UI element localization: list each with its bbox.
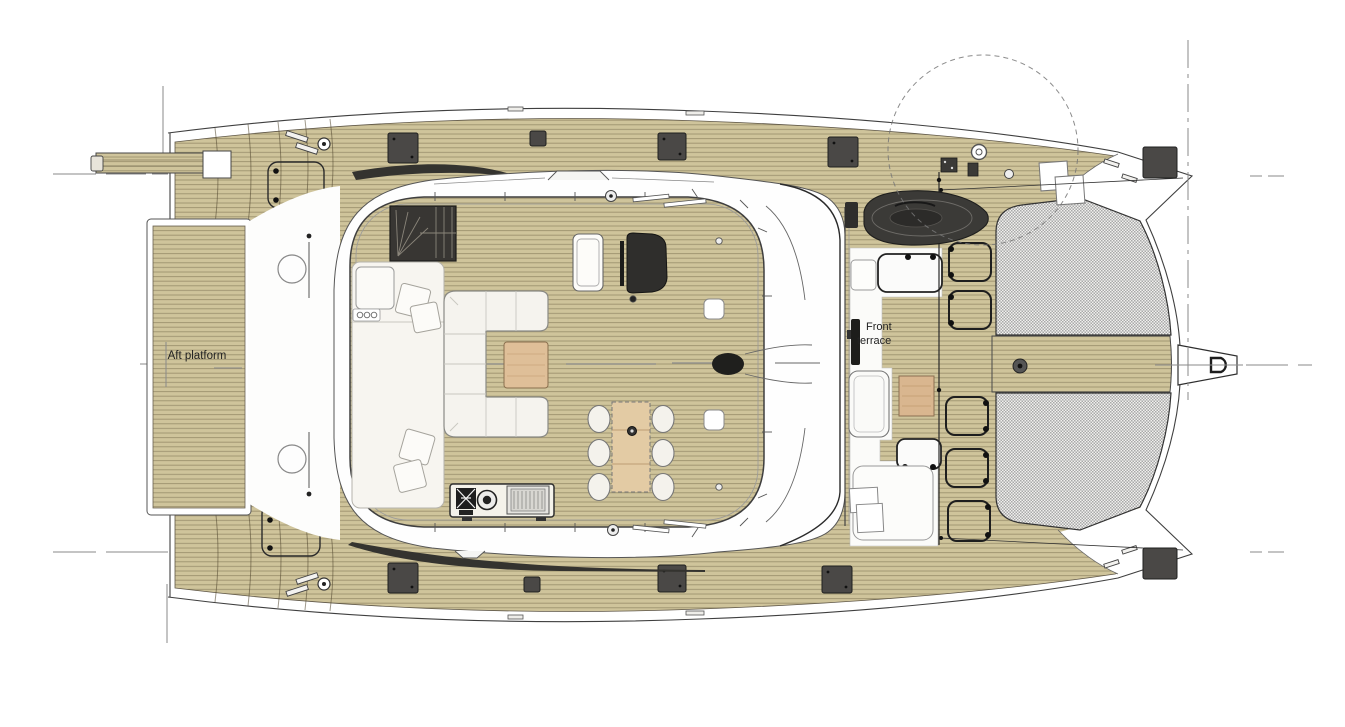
cockpit bbox=[248, 186, 340, 540]
front-terrace-label-line2: terrace bbox=[857, 335, 891, 347]
aft-platform-label: Aft platform bbox=[168, 350, 227, 362]
windlass-dot bbox=[1018, 364, 1023, 369]
deck-fitting-round bbox=[1005, 170, 1014, 179]
roof-fitting-top bbox=[716, 238, 722, 244]
galley-unit bbox=[450, 484, 554, 521]
roof-pad-top bbox=[704, 299, 724, 319]
crane-post bbox=[972, 145, 987, 160]
top-bench bbox=[573, 234, 603, 291]
cockpit-floor bbox=[248, 186, 340, 540]
galley-grill-icon bbox=[507, 486, 549, 514]
passerelle-tip bbox=[91, 156, 103, 171]
cockpit-table-port bbox=[278, 255, 306, 283]
terrace-seat-left bbox=[849, 371, 889, 437]
dining-table bbox=[612, 402, 650, 492]
deck-fitting-a bbox=[941, 158, 957, 172]
staircase bbox=[390, 206, 456, 261]
terrace-seat-small bbox=[851, 260, 876, 290]
cockpit-table-starboard bbox=[278, 445, 306, 473]
jet-ski-seat bbox=[890, 209, 942, 227]
roof-notch-top bbox=[548, 171, 609, 180]
aft-platform-teak bbox=[153, 226, 245, 508]
passerelle-base bbox=[203, 151, 231, 178]
deck-fitting-b bbox=[968, 163, 978, 176]
passerelle-plank bbox=[96, 153, 206, 173]
roof-fitting-bottom bbox=[716, 484, 722, 490]
front-terrace-label-line1: Front bbox=[866, 321, 892, 333]
helm-door-handle bbox=[712, 353, 744, 375]
deck-plan-canvas: Aft platform bbox=[0, 0, 1345, 727]
reference-marks-right bbox=[1188, 40, 1312, 552]
terrace-door-latch bbox=[847, 330, 851, 339]
helm-rail bbox=[620, 241, 624, 286]
side-cabinet bbox=[356, 267, 394, 309]
coffee-table bbox=[504, 342, 548, 388]
roof-pad-bottom bbox=[704, 410, 724, 430]
yacht-deck-plan: Aft platform bbox=[0, 0, 1345, 727]
side-lounge bbox=[352, 262, 444, 508]
aft-platform: Aft platform bbox=[147, 219, 251, 515]
jet-ski-chock bbox=[845, 202, 858, 228]
dining-set bbox=[588, 402, 674, 501]
